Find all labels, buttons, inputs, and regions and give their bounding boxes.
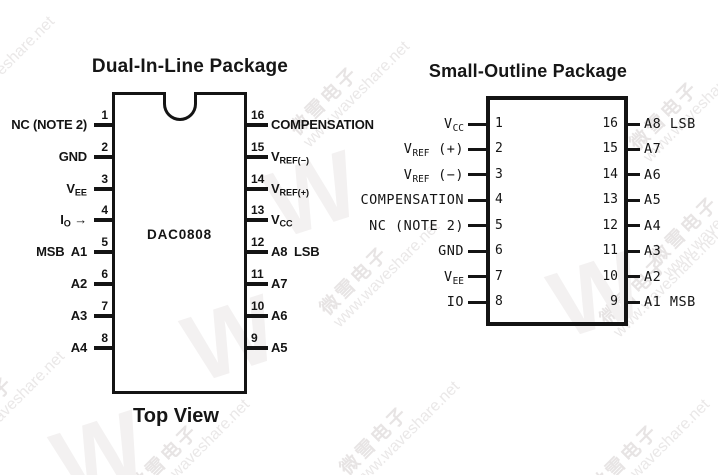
pin-stub <box>94 123 115 127</box>
watermark-url-text: www.waveshare.net <box>0 349 69 461</box>
pin-label: A1 MSB <box>644 294 718 310</box>
pin-label-text: A3 <box>71 308 87 323</box>
soic-title: Small-Outline Package <box>388 61 668 82</box>
pin-label-text: REF(+) <box>279 188 309 198</box>
watermark-cn-text: 微雪电子 <box>127 383 242 475</box>
pin-stub <box>626 224 640 227</box>
pin-label: IO <box>306 294 464 310</box>
pin-stub <box>247 250 268 254</box>
pin-label: A3 <box>644 243 718 259</box>
pin-label: VEE <box>306 269 464 290</box>
pin-label-text: A5 <box>271 340 287 355</box>
pin-label: GND <box>306 243 464 259</box>
watermark-cn-text: 微雪电子 <box>337 365 452 475</box>
pin-stub <box>626 123 640 126</box>
pin-label: VREF (−) <box>306 167 464 188</box>
pin-stub <box>247 314 268 318</box>
watermark: 微雪电子www.waveshare.net <box>127 383 254 475</box>
pin-label: A2 <box>0 276 87 291</box>
pin-label-text: V <box>444 269 453 285</box>
pin-stub <box>626 148 640 151</box>
pin-label-text: A6 <box>271 308 287 323</box>
pin-label: A5 <box>271 340 391 355</box>
dip-title: Dual-In-Line Package <box>58 56 322 78</box>
pin-number: 2 <box>495 141 525 157</box>
pinout-figure: 微雪电子www.waveshare.net微雪电子www.waveshare.n… <box>0 0 718 475</box>
pin-label: A7 <box>644 141 718 157</box>
dip-chip-label: DAC0808 <box>112 227 247 242</box>
pin-number: 1 <box>495 116 525 132</box>
pin-label-text: A6 <box>644 167 661 183</box>
pin-label-text: CC <box>453 123 464 134</box>
pin-label-text: A4 <box>71 340 87 355</box>
pin-label-text: (+) <box>429 141 464 157</box>
dip-chip-body <box>112 92 247 394</box>
pin-number: 12 <box>588 218 618 234</box>
pin-label-text: (−) <box>429 167 464 183</box>
pin-number: 11 <box>588 243 618 259</box>
pin-label-text: NC (NOTE 2) <box>11 117 87 132</box>
pin-label-text: A5 <box>644 192 661 208</box>
pin-stub <box>468 173 486 176</box>
pin-label-text: GND <box>59 149 87 164</box>
pin-label: NC (NOTE 2) <box>0 117 87 132</box>
pin-label: IO → <box>0 212 87 232</box>
pin-stub <box>94 314 115 318</box>
pin-label-text: A1 MSB <box>644 294 696 310</box>
watermark-url-text: www.waveshare.net <box>351 379 463 475</box>
pin-label: MSB A1 <box>0 244 87 259</box>
pin-label-text: CC <box>279 219 292 229</box>
pin-label: A4 <box>0 340 87 355</box>
pin-label: VCC <box>306 116 464 137</box>
pin-label-text: A7 <box>644 141 661 157</box>
pin-stub <box>94 282 115 286</box>
pin-label-text: IO <box>447 294 464 310</box>
pin-label-text: A3 <box>644 243 661 259</box>
pin-stub <box>94 250 115 254</box>
pin-number: 5 <box>495 218 525 234</box>
pin-stub <box>468 123 486 126</box>
pin-label-text: GND <box>438 243 464 259</box>
watermark: 微雪电子www.waveshare.net <box>0 0 59 126</box>
pin-label-text: V <box>444 116 453 132</box>
pin-stub <box>626 173 640 176</box>
pin-number: 10 <box>588 269 618 285</box>
pin-label-text: NC (NOTE 2) <box>369 218 464 234</box>
pin-number: 7 <box>495 269 525 285</box>
pin-stub <box>247 346 268 350</box>
pin-stub <box>626 301 640 304</box>
pin-label-text: V <box>66 181 74 196</box>
pin-number: 9 <box>588 294 618 310</box>
pin-stub <box>626 250 640 253</box>
pin-stub <box>468 250 486 253</box>
pin-number: 16 <box>588 116 618 132</box>
watermark-cn-text: 微雪电子 <box>627 40 718 155</box>
pin-label-text: A8 LSB <box>644 116 696 132</box>
watermark-url-text: www.waveshare.net <box>0 14 59 126</box>
pin-label-text: → <box>71 212 87 227</box>
pin-number: 6 <box>495 243 525 259</box>
pin-stub <box>94 187 115 191</box>
pin-label-text: A2 <box>644 269 661 285</box>
pin-label-text: EE <box>75 188 87 198</box>
pin-label: A5 <box>644 192 718 208</box>
pin-label-text: REF <box>412 174 429 185</box>
pin-stub <box>626 275 640 278</box>
watermark: 微雪电子www.waveshare.net <box>587 383 714 475</box>
pin-stub <box>247 155 268 159</box>
pin-label: A4 <box>644 218 718 234</box>
pin-label-text: EE <box>453 276 464 287</box>
pin-label: NC (NOTE 2) <box>306 218 464 234</box>
pin-label-text: REF <box>412 148 429 159</box>
watermark-url-text: www.waveshare.net <box>601 397 713 475</box>
pin-label: A2 <box>644 269 718 285</box>
pin-stub <box>247 187 268 191</box>
pin-label: A3 <box>0 308 87 323</box>
pin-stub <box>468 199 486 202</box>
pin-stub <box>626 199 640 202</box>
pin-label-text: MSB A1 <box>36 244 87 259</box>
pin-stub <box>94 218 115 222</box>
pin-label: COMPENSATION <box>306 192 464 208</box>
pin-stub <box>468 301 486 304</box>
pin-number: 13 <box>588 192 618 208</box>
pin-label: VREF (+) <box>306 141 464 162</box>
pin-number: 8 <box>495 294 525 310</box>
pin-number: 3 <box>495 167 525 183</box>
pin-stub <box>247 123 268 127</box>
pin-number: 14 <box>588 167 618 183</box>
pin-label-text: A2 <box>71 276 87 291</box>
pin-label-text: A7 <box>271 276 287 291</box>
pin-number: 4 <box>495 192 525 208</box>
pin-number: 15 <box>588 141 618 157</box>
pin-stub <box>468 224 486 227</box>
pin-label: VEE <box>0 181 87 201</box>
pin-stub <box>94 346 115 350</box>
pin-label-text: COMPENSATION <box>360 192 464 208</box>
pin-stub <box>94 155 115 159</box>
pin-stub <box>247 282 268 286</box>
watermark-cn-text: 微雪电子 <box>587 383 702 475</box>
pin-stub <box>468 275 486 278</box>
watermark: 微雪电子www.waveshare.net <box>337 365 464 475</box>
pin-label: A6 <box>644 167 718 183</box>
pin-label: A6 <box>271 308 391 323</box>
pin-label: A8 LSB <box>644 116 718 132</box>
pin-label-text: O <box>64 219 71 229</box>
pin-stub <box>468 148 486 151</box>
pin-stub <box>247 218 268 222</box>
pin-label: GND <box>0 149 87 164</box>
pin-label-text: A4 <box>644 218 661 234</box>
pin-label-text: REF(−) <box>279 156 309 166</box>
watermark-cn-text: 微雪电子 <box>0 0 47 114</box>
dip-caption: Top View <box>96 405 256 428</box>
